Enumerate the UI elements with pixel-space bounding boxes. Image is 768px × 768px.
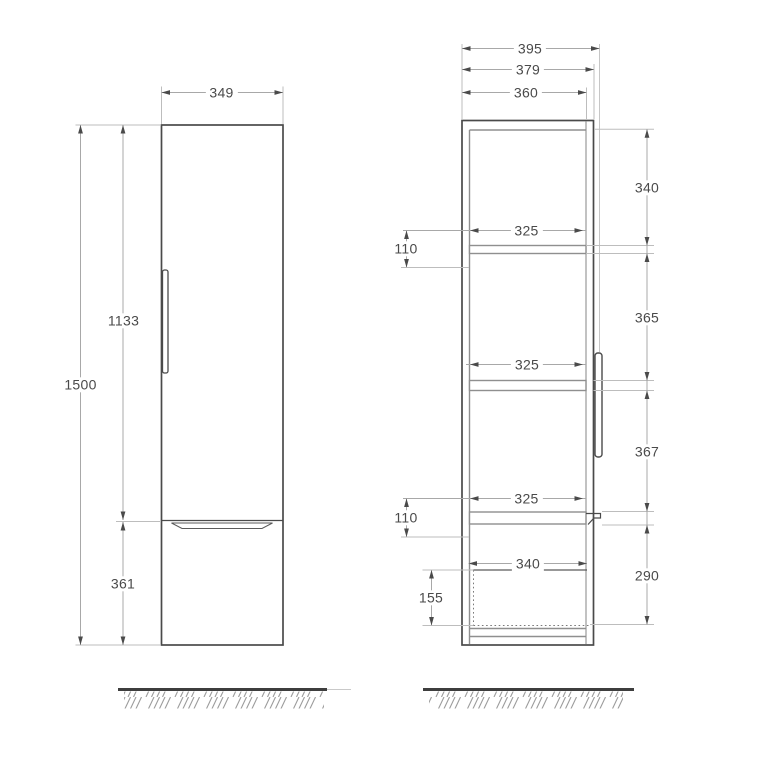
dim-front-door-height: 1133 [104, 313, 143, 328]
front-recess-handle [172, 523, 273, 529]
dim-side-top-to-shelf1: 340 [631, 180, 663, 195]
ground-hatch-left [124, 692, 324, 709]
dim-side-rail-offset-top: 110 [390, 241, 421, 256]
dim-side-shelf2-to-shelf3: 367 [631, 444, 663, 459]
side-shelf-3 [470, 512, 587, 524]
technical-drawing-page: 349 1500 1133 361 395 379 360 340 365 36… [0, 0, 768, 768]
front-door-handle [163, 270, 169, 373]
front-cabinet-outline [162, 125, 284, 645]
dim-side-shelf-depth-top: 325 [510, 223, 542, 238]
side-shelf-1 [470, 246, 587, 254]
dim-side-rail-lines [401, 231, 469, 538]
dim-side-depth-carcass: 360 [510, 85, 542, 100]
dim-side-rail-offset-bottom: 110 [390, 510, 421, 525]
drawing-svg [0, 0, 768, 768]
dim-side-shelf1-to-shelf2: 365 [631, 310, 663, 325]
dim-side-shelf-depth-low: 325 [510, 491, 542, 506]
ground-left [118, 690, 351, 709]
side-door-handle [595, 353, 602, 457]
dim-side-depth-with-door: 379 [512, 62, 544, 77]
dim-front-total-height: 1500 [60, 377, 100, 392]
ground-hatch-right [429, 692, 623, 709]
dim-side-shelf-depth-mid: 325 [511, 357, 543, 372]
dim-side-drawer-depth: 340 [512, 556, 544, 571]
front-view [162, 125, 284, 645]
dim-side-bottom-section: 290 [631, 568, 663, 583]
dim-side-depth-total: 395 [514, 41, 546, 56]
dim-side-drawer-inner-height: 155 [415, 590, 447, 605]
side-shelf-2 [470, 381, 587, 391]
dim-front-drawer-height: 361 [107, 576, 139, 591]
dim-front-width: 349 [205, 85, 237, 100]
ground-right [423, 690, 634, 709]
